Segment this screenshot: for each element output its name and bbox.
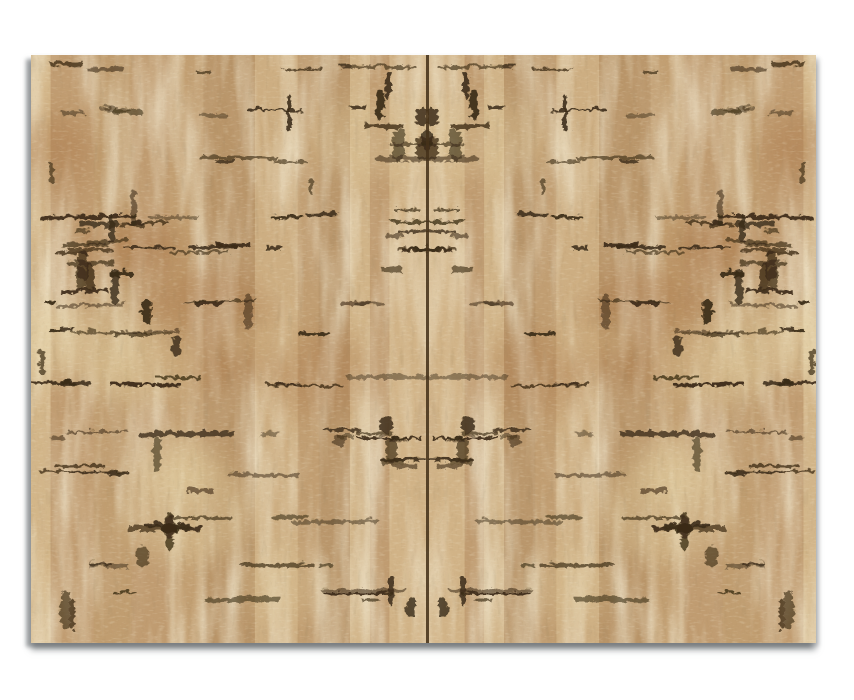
cork-texture-panel bbox=[31, 55, 816, 643]
cork-panel-right-half-mirrored bbox=[427, 55, 816, 643]
cork-panel-left-half bbox=[31, 55, 427, 643]
cork-fabric-photo bbox=[0, 0, 854, 700]
center-seam-line bbox=[426, 55, 429, 643]
